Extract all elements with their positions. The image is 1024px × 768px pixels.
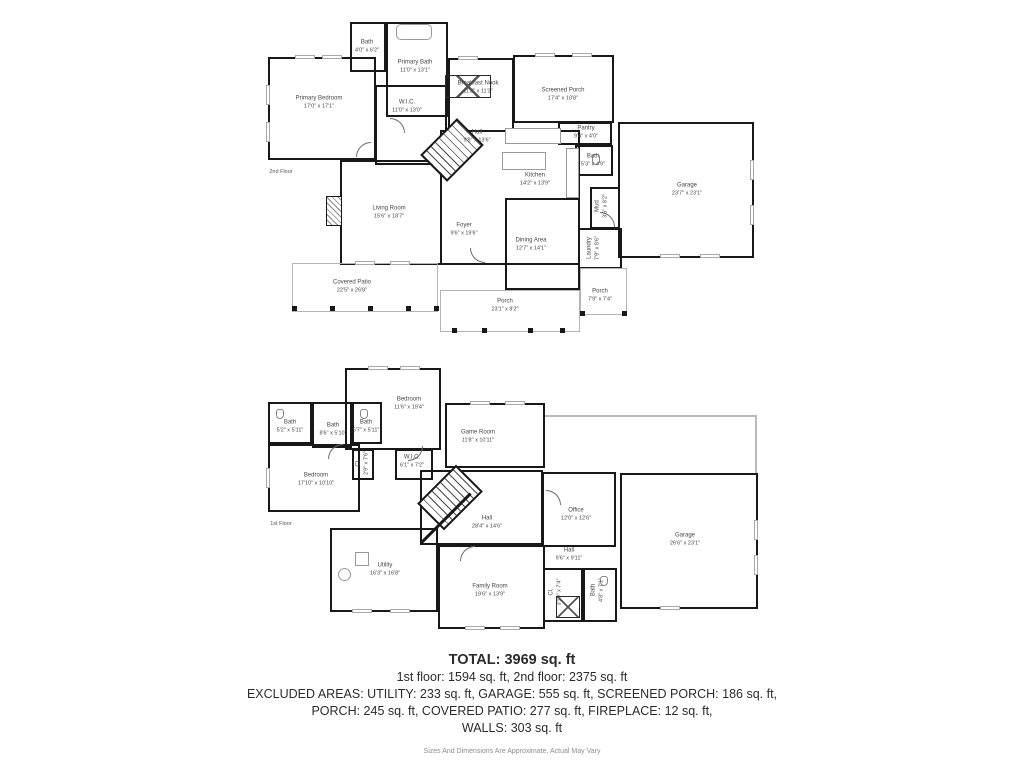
toilet	[276, 409, 284, 419]
room-label-hall-2f: Hall 9'9" x 13'6"	[463, 130, 490, 145]
summary-excluded-2: PORCH: 245 sq. ft, COVERED PATIO: 277 sq…	[0, 703, 1024, 720]
room-name: Cl.	[356, 451, 364, 475]
porch-post	[528, 328, 533, 333]
room-name: Cl.	[549, 578, 557, 605]
window	[368, 366, 388, 370]
summary-excluded-3: WALLS: 303 sq. ft	[0, 720, 1024, 737]
kitchen-counter	[566, 148, 579, 198]
room-dims: 12'0" x 12'6"	[561, 515, 591, 522]
room-dims: 11'0" x 13'1"	[398, 67, 433, 74]
window	[750, 205, 754, 225]
room-label-garage-2f: Garage 23'7" x 23'1"	[672, 183, 702, 198]
room-name: Breakfast Nook	[457, 81, 498, 89]
room-name: Garage	[670, 533, 700, 541]
room-dims: 11'8" x 11'3"	[457, 88, 498, 95]
room-label-game-room: Game Room 11'8" x 10'11"	[461, 430, 495, 445]
summary-excluded-1: EXCLUDED AREAS: UTILITY: 233 sq. ft, GAR…	[0, 686, 1024, 703]
room-dims: 7'9" x 8'6"	[594, 236, 601, 260]
porch-post	[406, 306, 411, 311]
room-dims: 5'3" x 4'9"	[581, 161, 605, 168]
room-name: Bath	[319, 423, 346, 431]
room-label-primary-bedroom: Primary Bedroom 17'0" x 17'1"	[296, 96, 343, 111]
window	[355, 261, 375, 265]
floor-plan-canvas: 2nd Floor Bath 4'0" x 6'2" Primary Bath …	[0, 0, 1024, 768]
porch-post	[292, 306, 297, 311]
porch-post	[368, 306, 373, 311]
room-name: Hall	[463, 130, 490, 138]
room-label-laundry: Laundry 7'9" x 8'6"	[587, 236, 602, 260]
room-label-closet-1f: Cl. 2'9" x 7'6"	[356, 451, 371, 475]
window	[322, 55, 342, 59]
room-dims: 9'6" x 19'6"	[450, 230, 477, 237]
room-dims: 11'8" x 10'11"	[461, 437, 495, 444]
summary-total: TOTAL: 3969 sq. ft	[0, 652, 1024, 669]
room-label-porch-front: Porch 23'1" x 8'2"	[491, 299, 518, 314]
summary-block: TOTAL: 3969 sq. ft 1st floor: 1594 sq. f…	[0, 652, 1024, 755]
room-name: Bath	[581, 154, 605, 162]
roof-line	[755, 415, 757, 473]
room-name: Laundry	[587, 236, 595, 260]
room-dims: 11'0" x 13'0"	[392, 107, 422, 114]
room-name: Living Room	[372, 206, 405, 214]
room-dims: 15'6" x 18'7"	[372, 213, 405, 220]
room-label-bath-left: Bath 5'2" x 5'11"	[277, 420, 304, 435]
porch-post	[622, 311, 627, 316]
room-name: Dining Area	[515, 238, 546, 246]
room-label-hall-big: Hall 28'4" x 14'6"	[472, 516, 502, 531]
window	[750, 160, 754, 180]
room-dims: 17'4" x 10'8"	[541, 95, 584, 102]
room-dims: 17'10" x 10'10"	[298, 480, 334, 487]
room-name: Screened Porch	[541, 88, 584, 96]
room-label-foyer: Foyer 9'6" x 19'6"	[450, 223, 477, 238]
room-dims: 22'5" x 26'8"	[333, 287, 371, 294]
window	[505, 401, 525, 405]
room-label-garage-1f: Garage 26'6" x 23'1"	[670, 533, 700, 548]
room-dims: 19'6" x 13'9"	[472, 591, 507, 598]
room-label-family-room: Family Room 19'6" x 13'9"	[472, 584, 507, 599]
room-label-wic-1f: W.I.C. 6'1" x 7'2"	[400, 455, 424, 470]
window	[660, 606, 680, 610]
window	[700, 254, 720, 258]
window	[465, 626, 485, 630]
room-dims: 11'6" x 19'4"	[394, 404, 424, 411]
window	[266, 468, 270, 488]
room-name: Bath	[355, 40, 379, 48]
room-label-kitchen: Kitchen 14'2" x 13'9"	[520, 173, 550, 188]
summary-floors: 1st floor: 1594 sq. ft, 2nd floor: 2375 …	[0, 669, 1024, 686]
room-label-hall-small: Hall 9'6" x 9'11"	[556, 548, 583, 563]
room-name: Primary Bath	[398, 60, 433, 68]
room-label-bedroom-left: Bedroom 17'10" x 10'10"	[298, 473, 334, 488]
floor-label-1st: 1st Floor	[270, 521, 291, 527]
room-label-living-room: Living Room 15'6" x 18'7"	[372, 206, 405, 221]
room-dims: 4'8" x 7'1"	[598, 578, 605, 602]
room-dims: 23'7" x 23'1"	[672, 190, 702, 197]
floor-plan-page: { "summary": { "total": "TOTAL: 3969 sq.…	[0, 0, 1024, 768]
room-dims: 14'2" x 13'9"	[520, 180, 550, 187]
room-dims: 5'7" x 5'11"	[353, 427, 380, 434]
room-name: Porch	[588, 289, 612, 297]
room-label-bedroom-top: Bedroom 11'6" x 19'4"	[394, 397, 424, 412]
room-dims: 26'6" x 23'1"	[670, 540, 700, 547]
room-name: W.I.C.	[400, 455, 424, 463]
room-name: Foyer	[450, 223, 477, 231]
room-dims: 9'9" x 13'6"	[463, 137, 490, 144]
room-label-office: Office 12'0" x 12'6"	[561, 508, 591, 523]
porch-post	[580, 311, 585, 316]
room-dims: 17'0" x 17'1"	[296, 103, 343, 110]
room-name: Pantry	[574, 126, 598, 134]
room-label-covered-patio: Covered Patio 22'5" x 26'8"	[333, 280, 371, 295]
room-name: Bath	[277, 420, 304, 428]
room-dims: 7'9" x 7'4"	[588, 296, 612, 303]
room-label-wic-2f: W.I.C. 11'0" x 13'0"	[392, 100, 422, 115]
room-name: Bedroom	[298, 473, 334, 481]
room-dims: 9'6" x 9'11"	[556, 555, 583, 562]
floor-label-2nd: 2nd Floor	[269, 169, 292, 175]
window	[400, 366, 420, 370]
summary-disclaimer: Sizes And Dimensions Are Approximate, Ac…	[0, 748, 1024, 755]
room-label-porch-side: Porch 7'9" x 7'4"	[588, 289, 612, 304]
room-name: Garage	[672, 183, 702, 191]
room-name: Game Room	[461, 430, 495, 438]
room-name: Kitchen	[520, 173, 550, 181]
room-dims: 6'1" x 7'2"	[400, 462, 424, 469]
porch-post	[434, 306, 439, 311]
fireplace	[326, 196, 342, 226]
kitchen-island	[502, 152, 546, 170]
window	[266, 85, 270, 105]
room-dims: 3'10" x 7'4"	[556, 578, 563, 605]
room-dims: 28'4" x 14'6"	[472, 523, 502, 530]
window	[352, 609, 372, 613]
window	[390, 609, 410, 613]
window	[754, 520, 758, 540]
window	[458, 56, 478, 60]
room-label-bath-2f: Bath 5'3" x 4'9"	[581, 154, 605, 169]
toilet	[360, 409, 368, 419]
room-name: Porch	[491, 299, 518, 307]
room-label-dining-area: Dining Area 12'7" x 14'1"	[515, 238, 546, 253]
room-dims: 3'6" x 8'2"	[602, 194, 609, 218]
window	[500, 626, 520, 630]
room-label-pantry: Pantry 9'4" x 4'0"	[574, 126, 598, 141]
room-name: Family Room	[472, 584, 507, 592]
water-heater	[338, 568, 351, 581]
room-dims: 8'6" x 5'10"	[319, 430, 346, 437]
window	[660, 254, 680, 258]
room-name: Primary Bedroom	[296, 96, 343, 104]
window	[572, 53, 592, 57]
window	[470, 401, 490, 405]
room-label-mud: Mud 3'6" x 8'2"	[595, 194, 610, 218]
window	[266, 122, 270, 142]
room-name: Hall	[472, 516, 502, 524]
room-label-utility: Utility 16'3" x 16'8"	[370, 563, 400, 578]
room-dims: 4'0" x 6'2"	[355, 47, 379, 54]
room-label-bath-mid: Bath 8'6" x 5'10"	[319, 423, 346, 438]
room-label-screened-porch: Screened Porch 17'4" x 10'8"	[541, 88, 584, 103]
room-name: Mud	[595, 194, 603, 218]
room-dims: 12'7" x 14'1"	[515, 245, 546, 252]
room-name: Bath	[353, 420, 380, 428]
room-label-bath-right: Bath 5'7" x 5'11"	[353, 420, 380, 435]
washer-box	[355, 552, 369, 566]
porch-post	[482, 328, 487, 333]
room-name: W.I.C.	[392, 100, 422, 108]
room-label-closet-br: Cl. 3'10" x 7'4"	[549, 578, 564, 605]
room-dims: 5'2" x 5'11"	[277, 427, 304, 434]
room-name: Bedroom	[394, 397, 424, 405]
window	[754, 555, 758, 575]
room-dims: 9'4" x 4'0"	[574, 133, 598, 140]
porch-post	[330, 306, 335, 311]
room-label-bath-br: Bath 4'8" x 7'1"	[591, 578, 606, 602]
room-name: Covered Patio	[333, 280, 371, 288]
room-dims: 23'1" x 8'2"	[491, 306, 518, 313]
room-name: Bath	[591, 578, 599, 602]
room-label-breakfast-nook: Breakfast Nook 11'8" x 11'3"	[457, 81, 498, 96]
bathtub	[396, 24, 432, 40]
window	[295, 55, 315, 59]
room-name: Utility	[370, 563, 400, 571]
room-dims: 16'3" x 16'8"	[370, 570, 400, 577]
porch-post	[452, 328, 457, 333]
room-dims: 2'9" x 7'6"	[363, 451, 370, 475]
room-name: Office	[561, 508, 591, 516]
room-label-bath-top: Bath 4'0" x 6'2"	[355, 40, 379, 55]
window	[390, 261, 410, 265]
porch-post	[560, 328, 565, 333]
room-label-primary-bath: Primary Bath 11'0" x 13'1"	[398, 60, 433, 75]
roof-line	[545, 415, 757, 417]
window	[535, 53, 555, 57]
kitchen-counter	[505, 128, 561, 144]
room-name: Hall	[556, 548, 583, 556]
